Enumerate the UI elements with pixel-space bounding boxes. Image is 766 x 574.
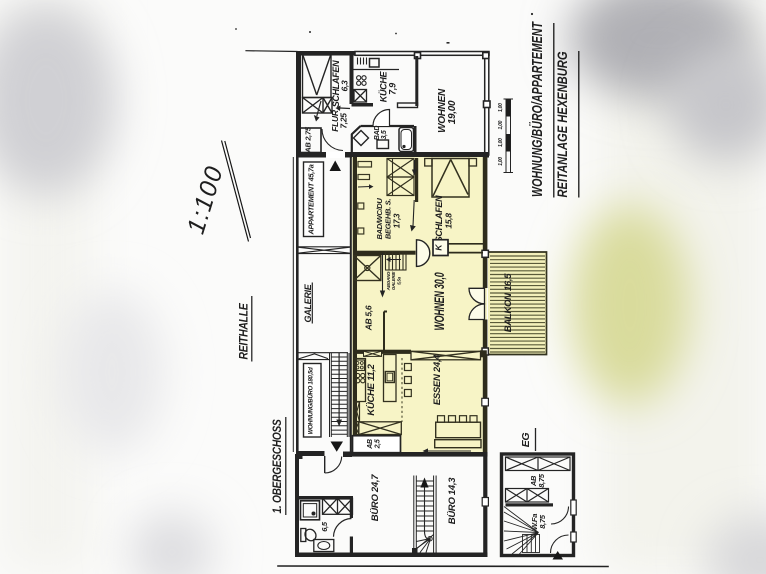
svg-text:BALKON 16,5: BALKON 16,5 — [503, 273, 514, 332]
svg-text:19,00: 19,00 — [447, 100, 458, 124]
svg-text:3,5: 3,5 — [381, 130, 388, 139]
svg-text:WOHNUNG/BÜRO/APPARTEMENT: WOHNUNG/BÜRO/APPARTEMENT — [529, 21, 546, 197]
svg-text:AB 5,6: AB 5,6 — [364, 305, 374, 331]
svg-text:BÜRO 24,7: BÜRO 24,7 — [370, 474, 381, 521]
svg-text:ESSEN 24,4: ESSEN 24,4 — [432, 354, 443, 405]
svg-text:5,5a: 5,5a — [397, 276, 402, 284]
svg-text:1,00: 1,00 — [498, 138, 504, 147]
svg-text:6,5: 6,5 — [320, 521, 329, 532]
svg-text:15,8: 15,8 — [444, 213, 454, 229]
svg-text:BAD: BAD — [374, 126, 381, 141]
svg-text:BEGEHB. S.: BEGEHB. S. — [384, 199, 393, 240]
svg-text:AB: AB — [367, 439, 374, 450]
svg-text:6,3: 6,3 — [340, 80, 350, 91]
svg-text:REITANLAGE HEXENBURG: REITANLAGE HEXENBURG — [554, 51, 570, 197]
svg-text:7,9: 7,9 — [388, 83, 398, 95]
svg-text:EG: EG — [520, 433, 532, 448]
svg-text:AB 2,75: AB 2,75 — [304, 126, 313, 154]
svg-text:2,5: 2,5 — [375, 439, 382, 449]
svg-text:SCHLAFEN: SCHLAFEN — [434, 195, 444, 242]
svg-text:7,25: 7,25 — [339, 113, 349, 129]
svg-text:BÜRO 14,3: BÜRO 14,3 — [447, 477, 458, 524]
svg-text:8,75: 8,75 — [537, 473, 546, 488]
svg-text:WOHNUNG/BÜRO 180,5d: WOHNUNG/BÜRO 180,5d — [306, 366, 315, 434]
svg-text:17,3: 17,3 — [393, 213, 402, 228]
svg-text:REITHALLE: REITHALLE — [237, 302, 251, 359]
svg-text:1. OBERGESCHOSS: 1. OBERGESCHOSS — [270, 419, 284, 513]
svg-text:KÜCHE 11,2: KÜCHE 11,2 — [366, 363, 377, 415]
svg-text:8,75: 8,75 — [538, 514, 547, 529]
svg-text:GALERIE: GALERIE — [391, 271, 396, 291]
svg-text:APPARTEMENT 45,7a: APPARTEMENT 45,7a — [307, 164, 316, 235]
svg-text:WOHNEN 30,0: WOHNEN 30,0 — [432, 272, 447, 331]
svg-text:1,00: 1,00 — [498, 157, 504, 166]
svg-text:1,00: 1,00 — [498, 103, 504, 112]
svg-text:1,00: 1,00 — [498, 120, 504, 129]
